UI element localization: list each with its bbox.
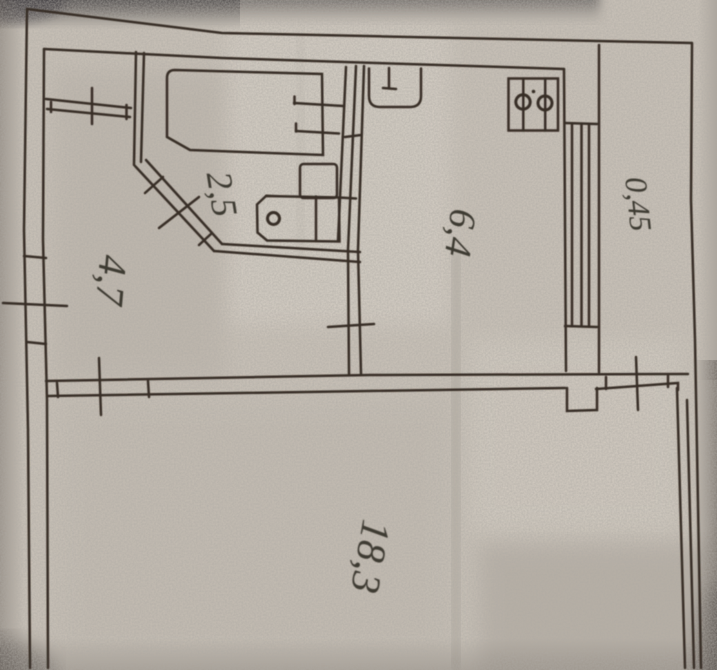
svg-text:2,5: 2,5 <box>199 169 246 220</box>
svg-text:6,4: 6,4 <box>436 206 484 259</box>
svg-text:4,7: 4,7 <box>87 253 136 309</box>
svg-text:0,45: 0,45 <box>618 175 658 233</box>
